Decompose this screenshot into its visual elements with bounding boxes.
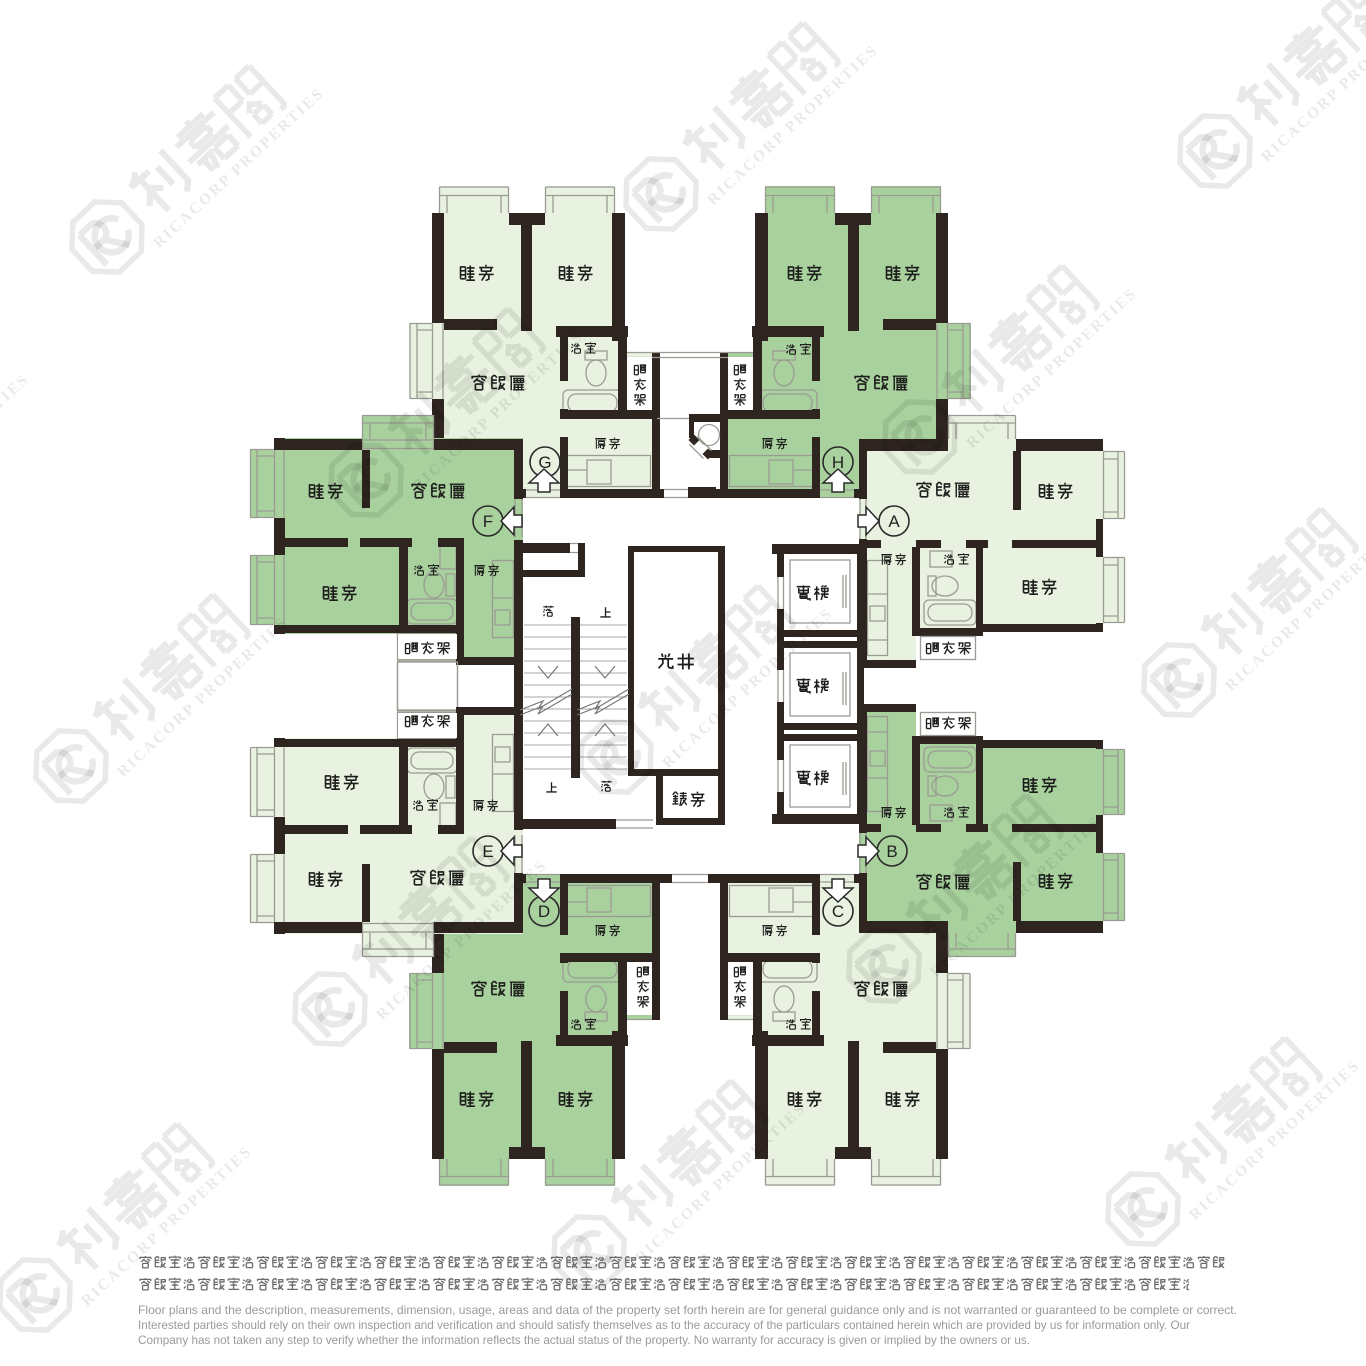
svg-text:F: F <box>483 512 493 531</box>
svg-text:B: B <box>886 842 897 861</box>
svg-text:Interested parties should rely: Interested parties should rely on their … <box>138 1319 1190 1332</box>
svg-text:D: D <box>538 902 550 921</box>
svg-text:C: C <box>832 902 844 921</box>
svg-text:Floor plans and the descriptio: Floor plans and the description, measure… <box>138 1304 1237 1317</box>
svg-text:A: A <box>888 512 900 531</box>
svg-text:Company has not taken any step: Company has not taken any step to verify… <box>138 1334 1030 1347</box>
